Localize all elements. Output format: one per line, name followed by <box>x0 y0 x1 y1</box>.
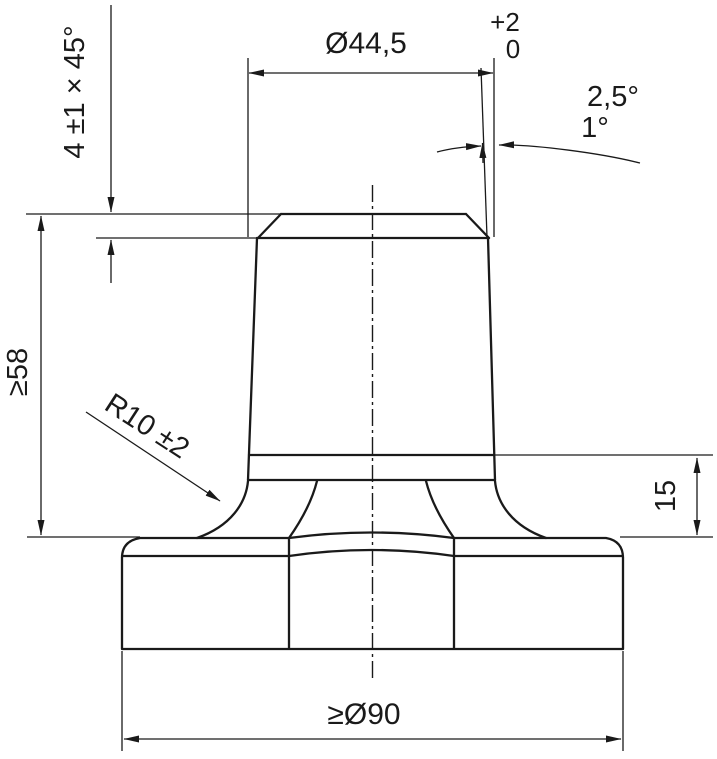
label-height-total: ≥58 <box>2 348 34 396</box>
neck-edges <box>248 455 495 480</box>
technical-drawing-page: 4 ±1 × 45° Ø44,5 +2 0 2,5° 1° ≥58 R10 ±2… <box>0 0 717 759</box>
fillet-left <box>197 481 248 538</box>
body-walls <box>248 238 495 480</box>
label-chamfer: 4 ±1 × 45° <box>59 25 91 158</box>
technical-drawing-canvas: 4 ±1 × 45° Ø44,5 +2 0 2,5° 1° ≥58 R10 ±2… <box>0 0 717 759</box>
angle-arc-left <box>437 146 481 152</box>
label-diameter-top-tol-lower: 0 <box>506 34 520 64</box>
angle-tick-arrow <box>483 143 484 163</box>
label-draft-angle-max: 2,5° <box>587 81 639 113</box>
label-fillet-radius: R10 ±2 <box>99 388 195 466</box>
fillet-right <box>495 481 546 538</box>
label-diameter-top-tol-upper: +2 <box>490 7 520 37</box>
inner-curve-right <box>426 481 454 538</box>
label-draft-angle-min: 1° <box>581 112 609 144</box>
inner-curve-left <box>289 481 317 538</box>
label-flange-height: 15 <box>650 480 682 512</box>
dimension-labels: 4 ±1 × 45° Ø44,5 +2 0 2,5° 1° ≥58 R10 ±2… <box>2 7 682 731</box>
label-diameter-base: ≥Ø90 <box>327 698 400 731</box>
angle-arc-right <box>499 145 640 163</box>
ext-wall-draft <box>481 68 487 237</box>
label-diameter-top: Ø44,5 <box>325 27 407 60</box>
